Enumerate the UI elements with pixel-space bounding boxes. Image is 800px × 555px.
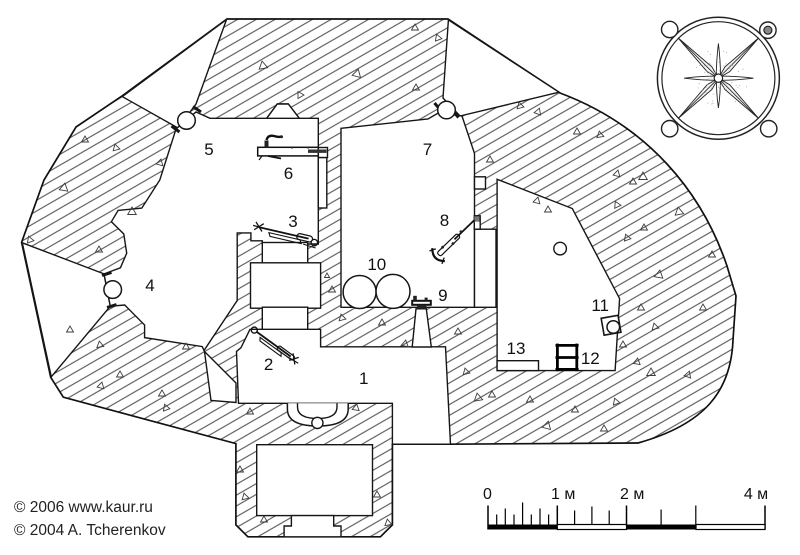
svg-text:12: 12 (581, 349, 600, 368)
svg-text:8: 8 (440, 211, 449, 230)
svg-text:10: 10 (367, 255, 386, 274)
svg-text:13: 13 (507, 339, 526, 358)
svg-text:4: 4 (145, 276, 154, 295)
svg-text:6: 6 (284, 164, 293, 183)
svg-text:© 2006 www.kaur.ru: © 2006 www.kaur.ru (14, 499, 153, 516)
svg-text:2 м: 2 м (620, 486, 644, 503)
svg-text:0: 0 (483, 486, 492, 503)
svg-text:4 м: 4 м (744, 486, 768, 503)
svg-text:9: 9 (438, 286, 447, 305)
svg-text:5: 5 (204, 140, 213, 159)
svg-text:© 2004 A. Tcherenkov: © 2004 A. Tcherenkov (14, 522, 166, 539)
svg-text:1 м: 1 м (551, 486, 575, 503)
svg-text:3: 3 (288, 212, 297, 231)
svg-text:1: 1 (359, 369, 368, 388)
svg-text:2: 2 (264, 355, 273, 374)
svg-text:7: 7 (423, 140, 432, 159)
svg-text:11: 11 (591, 296, 609, 315)
